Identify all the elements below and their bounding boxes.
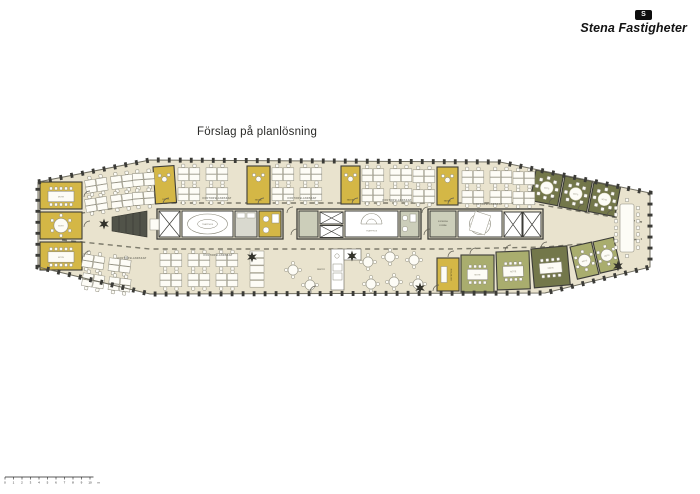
room-label: KOPIERING: [438, 221, 449, 223]
desk: [283, 168, 294, 174]
chair: [60, 203, 63, 206]
chair: [315, 181, 318, 184]
chair: [192, 270, 195, 273]
chair: [276, 164, 279, 167]
chair: [405, 202, 408, 205]
desk: [401, 189, 412, 195]
desk: [206, 168, 217, 174]
desk: [424, 190, 435, 196]
locker: [250, 266, 264, 273]
chair: [625, 254, 628, 257]
desk: [206, 174, 217, 180]
chair: [276, 181, 279, 184]
table: [366, 279, 376, 289]
room-label: FÖRRÅD: [439, 224, 447, 227]
chair: [51, 229, 54, 232]
chair: [466, 167, 469, 170]
chair: [574, 256, 578, 260]
scale-number: 10: [88, 481, 92, 485]
chair: [122, 292, 126, 296]
table: [288, 265, 298, 275]
chair: [614, 239, 617, 242]
desk: [188, 254, 199, 260]
chair: [354, 174, 357, 177]
table: [385, 252, 395, 262]
chair: [553, 180, 557, 184]
chair: [287, 184, 290, 187]
open-plan-label: KONTORSLANDSKAP: [202, 197, 231, 200]
chair: [220, 250, 223, 253]
chair: [394, 182, 397, 185]
chair: [315, 164, 318, 167]
desk: [189, 168, 200, 174]
chair: [528, 188, 531, 191]
desk: [206, 188, 217, 194]
chair: [370, 276, 373, 279]
desk: [160, 260, 171, 266]
chair: [589, 253, 593, 257]
chair: [50, 247, 53, 250]
chair: [302, 284, 305, 287]
desk: [311, 168, 322, 174]
chair: [125, 190, 129, 194]
chair: [210, 184, 213, 187]
desk: [171, 274, 182, 280]
desk: [122, 193, 133, 200]
wc-fixture: [263, 227, 269, 233]
chair: [528, 205, 531, 208]
desk: [413, 190, 424, 196]
chair: [483, 265, 486, 268]
chair: [478, 281, 481, 284]
chair: [509, 262, 512, 265]
chair: [423, 283, 426, 286]
chair: [175, 250, 178, 253]
desk: [81, 260, 92, 268]
chair: [298, 269, 301, 272]
desk: [300, 168, 311, 174]
chair: [614, 213, 617, 216]
chair: [625, 198, 628, 201]
desk: [473, 171, 484, 177]
chair: [550, 194, 554, 198]
chair: [87, 270, 91, 274]
locker: [250, 273, 264, 280]
chair: [594, 203, 598, 207]
desk: [390, 175, 401, 181]
chair: [608, 206, 612, 210]
chair: [221, 201, 224, 204]
chair: [164, 250, 167, 253]
chair: [505, 184, 508, 187]
chair: [428, 166, 431, 169]
desk: [132, 192, 143, 199]
chair: [539, 178, 543, 182]
chair: [546, 258, 549, 261]
chair: [611, 192, 615, 196]
desk: [413, 170, 424, 176]
desk: [401, 175, 412, 181]
chair: [164, 287, 167, 290]
chair: [221, 184, 224, 187]
chair: [203, 287, 206, 290]
chair: [220, 287, 223, 290]
chair: [636, 213, 639, 216]
chair: [220, 267, 223, 270]
chair: [566, 197, 570, 201]
chair: [394, 202, 397, 205]
desk: [513, 198, 524, 204]
chair: [147, 169, 151, 173]
chair: [478, 265, 481, 268]
desk: [171, 280, 182, 286]
room-mote-se-1: MÖTE: [461, 255, 494, 292]
chair: [564, 190, 568, 194]
desk: [108, 264, 119, 271]
chair: [382, 256, 385, 259]
room-mote-left-2: MÖTE: [40, 212, 82, 239]
desk: [513, 192, 524, 198]
chair: [304, 164, 307, 167]
desk: [189, 174, 200, 180]
desk: [144, 179, 155, 186]
chair: [287, 201, 290, 204]
chair: [614, 220, 617, 223]
chair: [519, 262, 522, 265]
chair: [557, 257, 560, 260]
chair: [90, 212, 94, 216]
chair: [584, 194, 588, 198]
chair: [292, 275, 295, 278]
chair: [99, 174, 103, 178]
desk: [144, 198, 155, 205]
wc-fixture: [263, 216, 269, 222]
chair: [68, 229, 71, 232]
chair: [417, 183, 420, 186]
room-mote-left-3: MÖTE: [40, 242, 82, 270]
chair: [231, 270, 234, 273]
chair: [192, 250, 195, 253]
chair: [60, 247, 63, 250]
room-label: RECEPTION: [451, 268, 453, 280]
chair: [505, 167, 508, 170]
chair: [451, 175, 454, 178]
desk: [111, 182, 122, 189]
desk: [111, 201, 122, 208]
chair: [614, 233, 617, 236]
room-label: MÖTE: [58, 195, 65, 198]
chair: [585, 268, 589, 272]
core-blocks: TRAPPHUSTRAPPHUSKOPIERINGFÖRRÅD: [157, 209, 543, 239]
desk: [473, 177, 484, 183]
chair: [393, 274, 396, 277]
desk: [178, 188, 189, 194]
table: [389, 277, 399, 287]
chair: [603, 245, 607, 249]
chair: [597, 189, 601, 193]
chair: [555, 188, 559, 192]
chair: [309, 277, 312, 280]
chair: [114, 172, 118, 176]
desk: [199, 280, 210, 286]
chair: [528, 185, 531, 188]
chair: [405, 185, 408, 188]
small-table: [256, 176, 261, 181]
chair: [505, 204, 508, 207]
chair: [377, 202, 380, 205]
chair: [428, 183, 431, 186]
chair: [373, 261, 376, 264]
chair: [394, 185, 397, 188]
chair: [113, 255, 117, 259]
chair: [377, 165, 380, 168]
desk: [524, 172, 535, 178]
table: [305, 280, 315, 290]
chair: [136, 189, 140, 193]
chair: [419, 259, 422, 262]
desk: [390, 189, 401, 195]
desk: [97, 203, 108, 211]
chair: [366, 202, 369, 205]
storage-room: [299, 211, 318, 237]
desk: [300, 188, 311, 194]
chair: [614, 206, 617, 209]
chair: [598, 260, 602, 264]
chair: [50, 264, 53, 267]
scale-number: 0: [4, 481, 6, 485]
side-table: [150, 219, 159, 230]
chair: [345, 174, 348, 177]
chair: [551, 258, 554, 261]
desk: [272, 188, 283, 194]
scale-number: 2: [21, 481, 23, 485]
chair: [136, 170, 140, 174]
chair: [127, 207, 131, 211]
chair: [193, 164, 196, 167]
chair: [377, 185, 380, 188]
chair: [148, 205, 152, 209]
desk: [178, 168, 189, 174]
chair: [98, 271, 102, 275]
chair: [517, 168, 520, 171]
scale-number: 6: [55, 481, 57, 485]
chair: [220, 270, 223, 273]
chair: [519, 278, 522, 281]
desk: [373, 189, 384, 195]
desk: [513, 178, 524, 184]
chair: [193, 181, 196, 184]
chair: [55, 247, 58, 250]
locker: [250, 281, 264, 288]
chair: [596, 251, 600, 255]
chair: [636, 206, 639, 209]
open-plan-label: KONTORSLANDSKAP: [117, 257, 146, 260]
chair: [576, 182, 580, 186]
desk: [501, 171, 512, 177]
chair: [60, 264, 63, 267]
chair: [505, 278, 508, 281]
chair: [483, 281, 486, 284]
desk: [178, 174, 189, 180]
scale-bar: 012345678910m: [4, 477, 100, 485]
chair: [95, 288, 99, 292]
scale-number: 9: [81, 481, 83, 485]
chair: [210, 164, 213, 167]
chair: [517, 185, 520, 188]
chair: [65, 247, 68, 250]
chair: [363, 283, 366, 286]
chair: [137, 205, 141, 209]
chair: [428, 203, 431, 206]
desk: [311, 188, 322, 194]
desk: [86, 186, 97, 194]
scale-number: 7: [64, 481, 66, 485]
chair: [494, 184, 497, 187]
desk: [144, 172, 155, 179]
desk: [109, 277, 120, 284]
chair: [99, 193, 103, 197]
chair: [474, 265, 477, 268]
room-label: SAMTAL: [444, 200, 451, 203]
desk: [189, 194, 200, 200]
chair: [125, 171, 129, 175]
room-label: MÖTE: [474, 273, 481, 276]
chair: [614, 246, 617, 249]
chair: [572, 202, 576, 206]
chair: [540, 259, 543, 262]
chair: [50, 203, 53, 206]
scale-number: 5: [47, 481, 49, 485]
chair: [231, 267, 234, 270]
chair: [287, 181, 290, 184]
chair: [367, 267, 370, 270]
chair: [505, 187, 508, 190]
chair: [581, 250, 585, 254]
chair: [116, 208, 120, 212]
chair: [60, 214, 63, 217]
chair: [276, 184, 279, 187]
chair: [276, 201, 279, 204]
chair: [547, 274, 550, 277]
wc-fixture: [402, 226, 407, 231]
chair: [514, 262, 517, 265]
scale-number: 4: [38, 481, 40, 485]
chair: [113, 274, 117, 278]
chair: [203, 270, 206, 273]
chair: [203, 250, 206, 253]
chair: [366, 182, 369, 185]
chair: [262, 174, 265, 177]
room-mote-se-2: MÖTE: [496, 251, 530, 290]
chair: [600, 207, 604, 211]
chair: [84, 286, 88, 290]
chair: [285, 269, 288, 272]
chair: [376, 283, 379, 286]
chair: [175, 267, 178, 270]
chair: [579, 200, 583, 204]
desk: [120, 259, 131, 266]
desk: [122, 174, 133, 181]
chair: [210, 181, 213, 184]
desk: [132, 173, 143, 180]
desk: [462, 197, 473, 203]
room-samtal-4: SAMTAL: [437, 167, 458, 205]
chair: [417, 166, 420, 169]
desk: [227, 280, 238, 286]
chair: [466, 184, 469, 187]
desk: [272, 168, 283, 174]
chair: [576, 265, 580, 269]
chair: [494, 167, 497, 170]
desk: [119, 266, 130, 273]
chair: [477, 167, 480, 170]
chair: [607, 262, 611, 266]
desk: [524, 192, 535, 198]
desk: [413, 196, 424, 202]
chair: [469, 265, 472, 268]
chair: [504, 262, 507, 265]
desk: [272, 194, 283, 200]
desk: [160, 280, 171, 286]
desk: [122, 181, 133, 188]
desk: [462, 191, 473, 197]
chair: [193, 184, 196, 187]
room-label: MÖTE: [58, 256, 65, 259]
table: [409, 255, 419, 265]
chair: [182, 201, 185, 204]
desk: [189, 188, 200, 194]
chair: [395, 256, 398, 259]
desk: [513, 172, 524, 178]
chair: [231, 287, 234, 290]
chair: [70, 187, 73, 190]
desk: [188, 274, 199, 280]
chair: [98, 252, 102, 256]
open-plan-label: KONTORSLANDSKAP: [287, 197, 316, 200]
chair: [231, 250, 234, 253]
chair: [366, 165, 369, 168]
chair: [60, 187, 63, 190]
chair: [315, 184, 318, 187]
desk: [490, 191, 501, 197]
desk: [171, 260, 182, 266]
chair: [50, 187, 53, 190]
chair: [547, 176, 551, 180]
chair: [210, 201, 213, 204]
chair: [70, 203, 73, 206]
chair: [70, 247, 73, 250]
chair: [417, 276, 420, 279]
chair: [405, 165, 408, 168]
chair: [389, 262, 392, 265]
desk: [501, 191, 512, 197]
desk: [473, 191, 484, 197]
chair: [366, 185, 369, 188]
chair: [406, 259, 409, 262]
room-mote-ne-1: MÖTE: [530, 170, 563, 206]
desk: [227, 260, 238, 266]
chair: [124, 275, 128, 279]
room-mote-se-3: MÖTE: [531, 246, 570, 288]
chair: [367, 254, 370, 257]
chair: [304, 184, 307, 187]
desk: [362, 189, 373, 195]
chair: [221, 164, 224, 167]
chair: [535, 184, 539, 188]
chair: [591, 261, 595, 265]
desk: [300, 174, 311, 180]
chair: [304, 201, 307, 204]
